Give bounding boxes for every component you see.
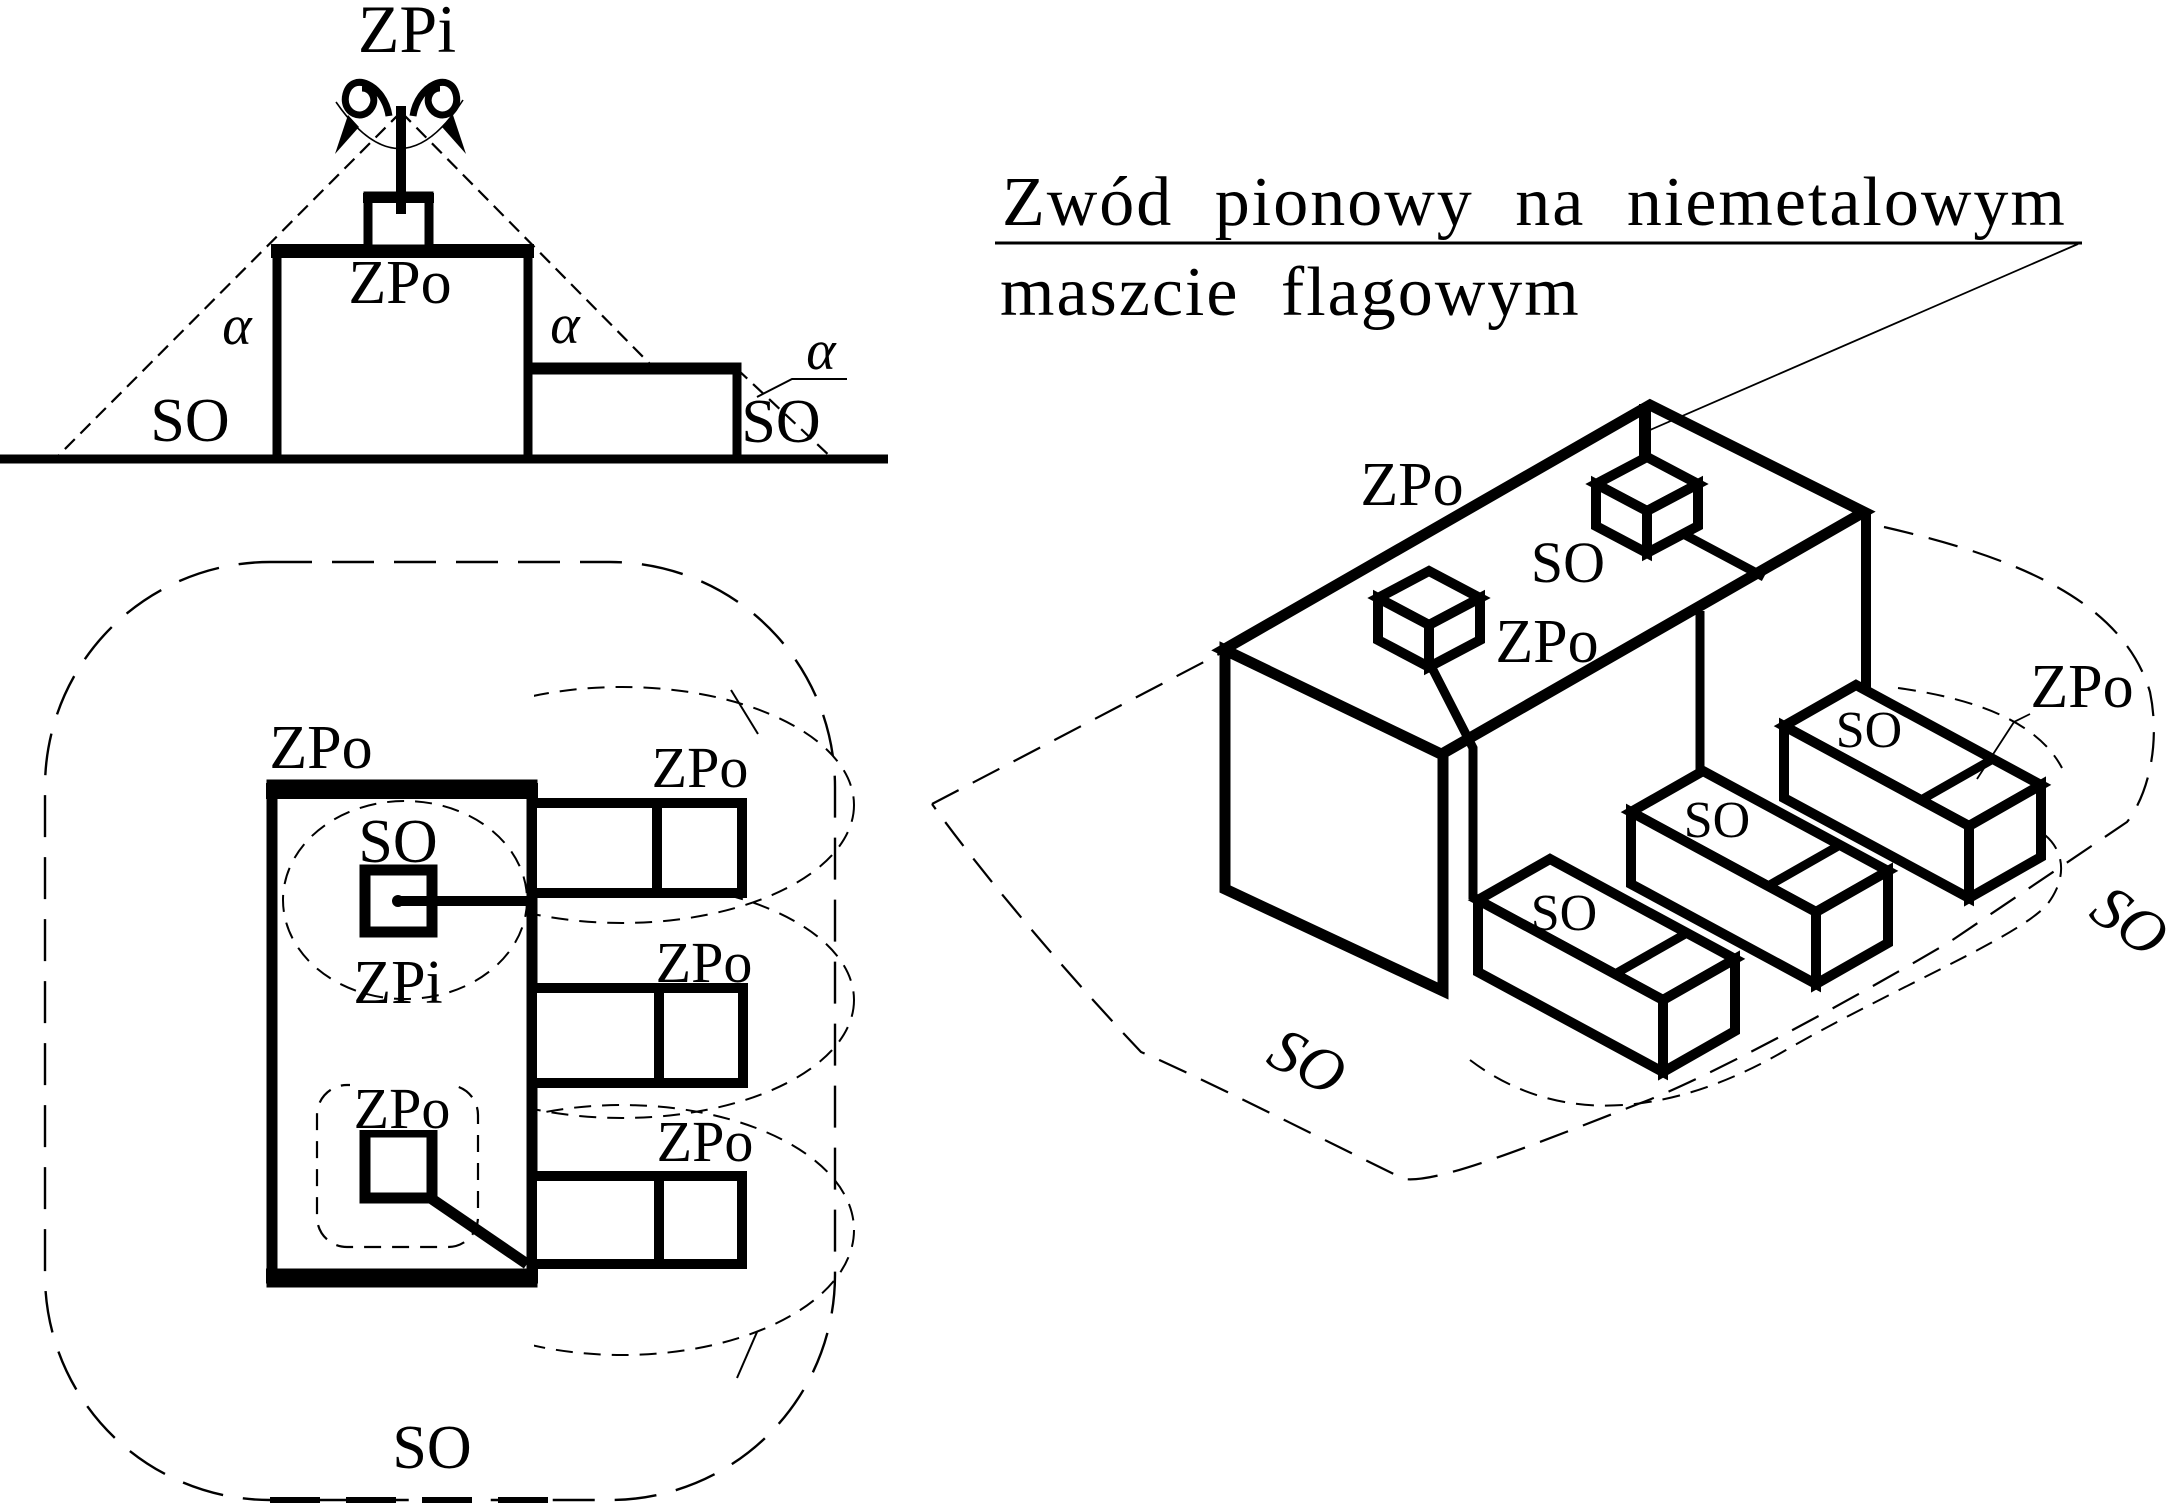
label-zpo-cube: ZPo xyxy=(1495,608,1598,676)
annex-row-1 xyxy=(532,803,742,893)
low-building xyxy=(528,367,737,459)
annex-row-2 xyxy=(532,988,743,1083)
roof-cube-1 xyxy=(1378,571,1480,667)
label-alpha-mid: α xyxy=(550,294,581,356)
diagram-page: ZPi ZPo α α α SO SO xyxy=(0,0,2166,1504)
label-so-left: SO xyxy=(150,387,229,455)
label-so-box-1: SO xyxy=(1531,885,1597,942)
iso-zone-outline-left xyxy=(932,653,1221,804)
annex-rect xyxy=(532,803,742,893)
label-so-right: SO xyxy=(741,388,820,456)
label-so-inner: SO xyxy=(358,808,437,876)
label-so-right-iso: SO xyxy=(2079,872,2166,971)
curl-arrow-left-icon xyxy=(345,82,389,116)
label-zpo-right-3: ZPo xyxy=(657,1109,754,1174)
tick-top-right xyxy=(731,690,758,734)
label-zpi-plan: ZPi xyxy=(353,949,443,1017)
arrowhead-left-icon xyxy=(335,115,359,154)
title-line-2: maszcie flagowym xyxy=(1000,254,1581,331)
label-so-box-3: SO xyxy=(1836,702,1902,759)
label-zpo-right-1: ZPo xyxy=(652,735,749,800)
label-zpo-main: ZPo xyxy=(269,714,372,782)
label-so-box-2: SO xyxy=(1684,792,1750,849)
title-line-1: Zwód pionowy na niemetalowym xyxy=(1002,164,2067,241)
curl-arrow-right-icon xyxy=(413,82,457,116)
label-zpo-right-2: ZPo xyxy=(656,930,753,995)
isometric-view: Zwód pionowy na niemetalowym maszcie fla… xyxy=(932,164,2166,1179)
label-alpha-left: α xyxy=(222,295,253,357)
label-so-roof: SO xyxy=(1531,530,1605,595)
plan-view: ZPo SO ZPi ZPo ZPo ZPo ZPo SO xyxy=(45,562,854,1500)
label-zpo-island: ZPo xyxy=(354,1076,451,1141)
annex-row-3 xyxy=(532,1176,742,1264)
label-so-ground: SO xyxy=(1258,1015,1356,1110)
terminal-square-2 xyxy=(365,1132,432,1198)
label-alpha-right: α xyxy=(806,320,837,382)
annex-rect xyxy=(532,1176,742,1264)
elevation-view: ZPi ZPo α α α SO SO xyxy=(0,0,888,459)
annex-rect xyxy=(532,988,743,1083)
label-so-bottom: SO xyxy=(392,1414,471,1482)
title-leader xyxy=(1650,244,2078,430)
arrowhead-right-icon xyxy=(442,115,466,154)
tick-bottom-right xyxy=(737,1332,757,1378)
label-zpo-roof: ZPo xyxy=(1360,451,1463,519)
label-zpi: ZPi xyxy=(358,0,456,67)
label-zpo: ZPo xyxy=(348,249,451,317)
label-zpo-right-iso: ZPo xyxy=(2030,653,2133,721)
lightning-protection-diagram: ZPi ZPo α α α SO SO xyxy=(0,0,2166,1504)
